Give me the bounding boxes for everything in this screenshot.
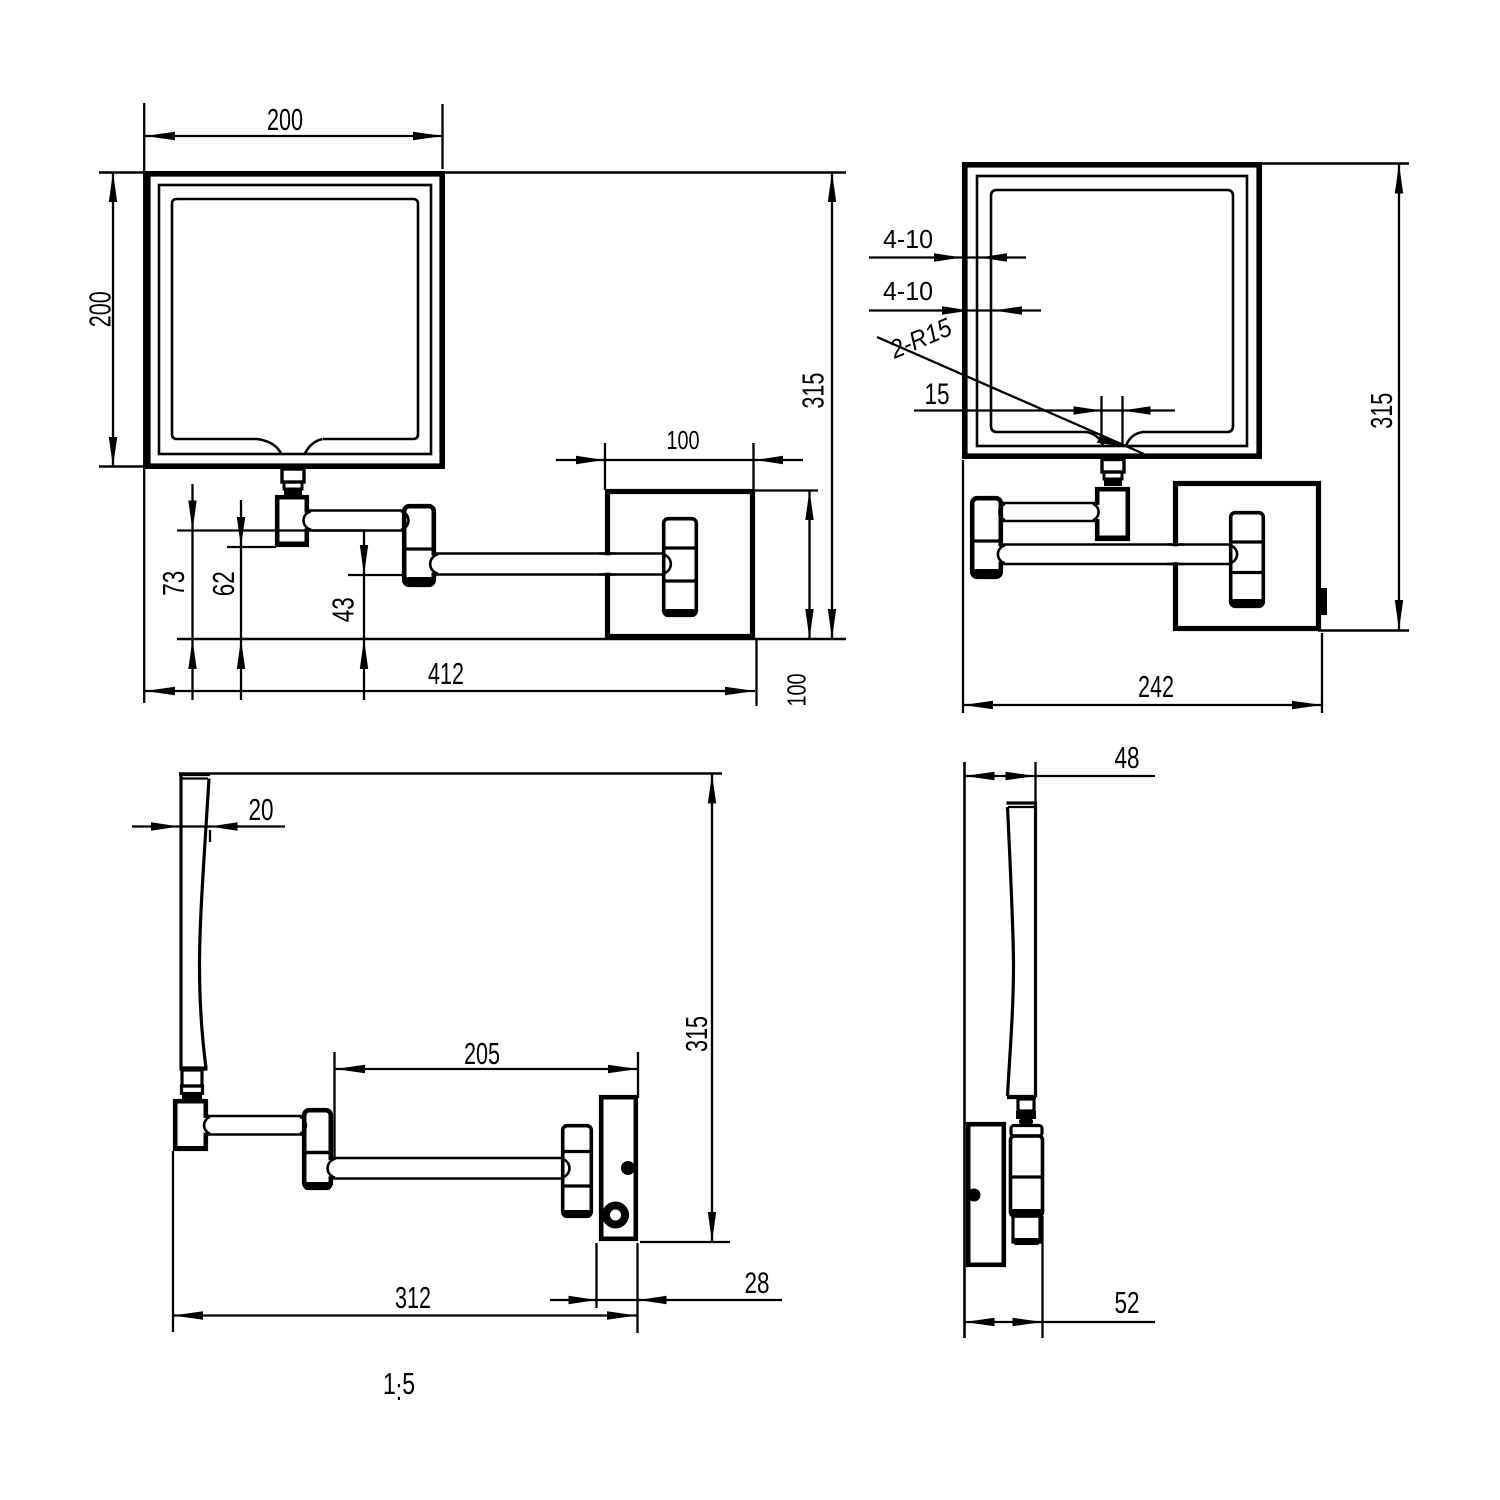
svg-text:200: 200 <box>83 291 118 327</box>
svg-text:73: 73 <box>156 571 191 596</box>
svg-text:4-10: 4-10 <box>883 276 933 306</box>
svg-text:315: 315 <box>679 1016 714 1052</box>
svg-text:205: 205 <box>464 1036 500 1071</box>
svg-text:1:5: 1:5 <box>383 1366 415 1407</box>
svg-text:100: 100 <box>782 674 812 707</box>
svg-text:20: 20 <box>249 792 274 827</box>
svg-text:28: 28 <box>745 1267 770 1300</box>
svg-text:315: 315 <box>1364 393 1399 429</box>
svg-text:315: 315 <box>796 373 831 409</box>
svg-text:412: 412 <box>428 656 464 691</box>
svg-text:100: 100 <box>667 425 700 455</box>
svg-text:43: 43 <box>326 597 361 622</box>
svg-text:4-10: 4-10 <box>883 224 933 254</box>
svg-text:242: 242 <box>1138 669 1174 704</box>
svg-text:52: 52 <box>1115 1285 1140 1320</box>
svg-text:62: 62 <box>206 571 241 596</box>
svg-text:48: 48 <box>1115 740 1140 775</box>
svg-text:312: 312 <box>395 1280 431 1315</box>
svg-text:200: 200 <box>267 102 303 137</box>
svg-text:15: 15 <box>925 378 950 411</box>
